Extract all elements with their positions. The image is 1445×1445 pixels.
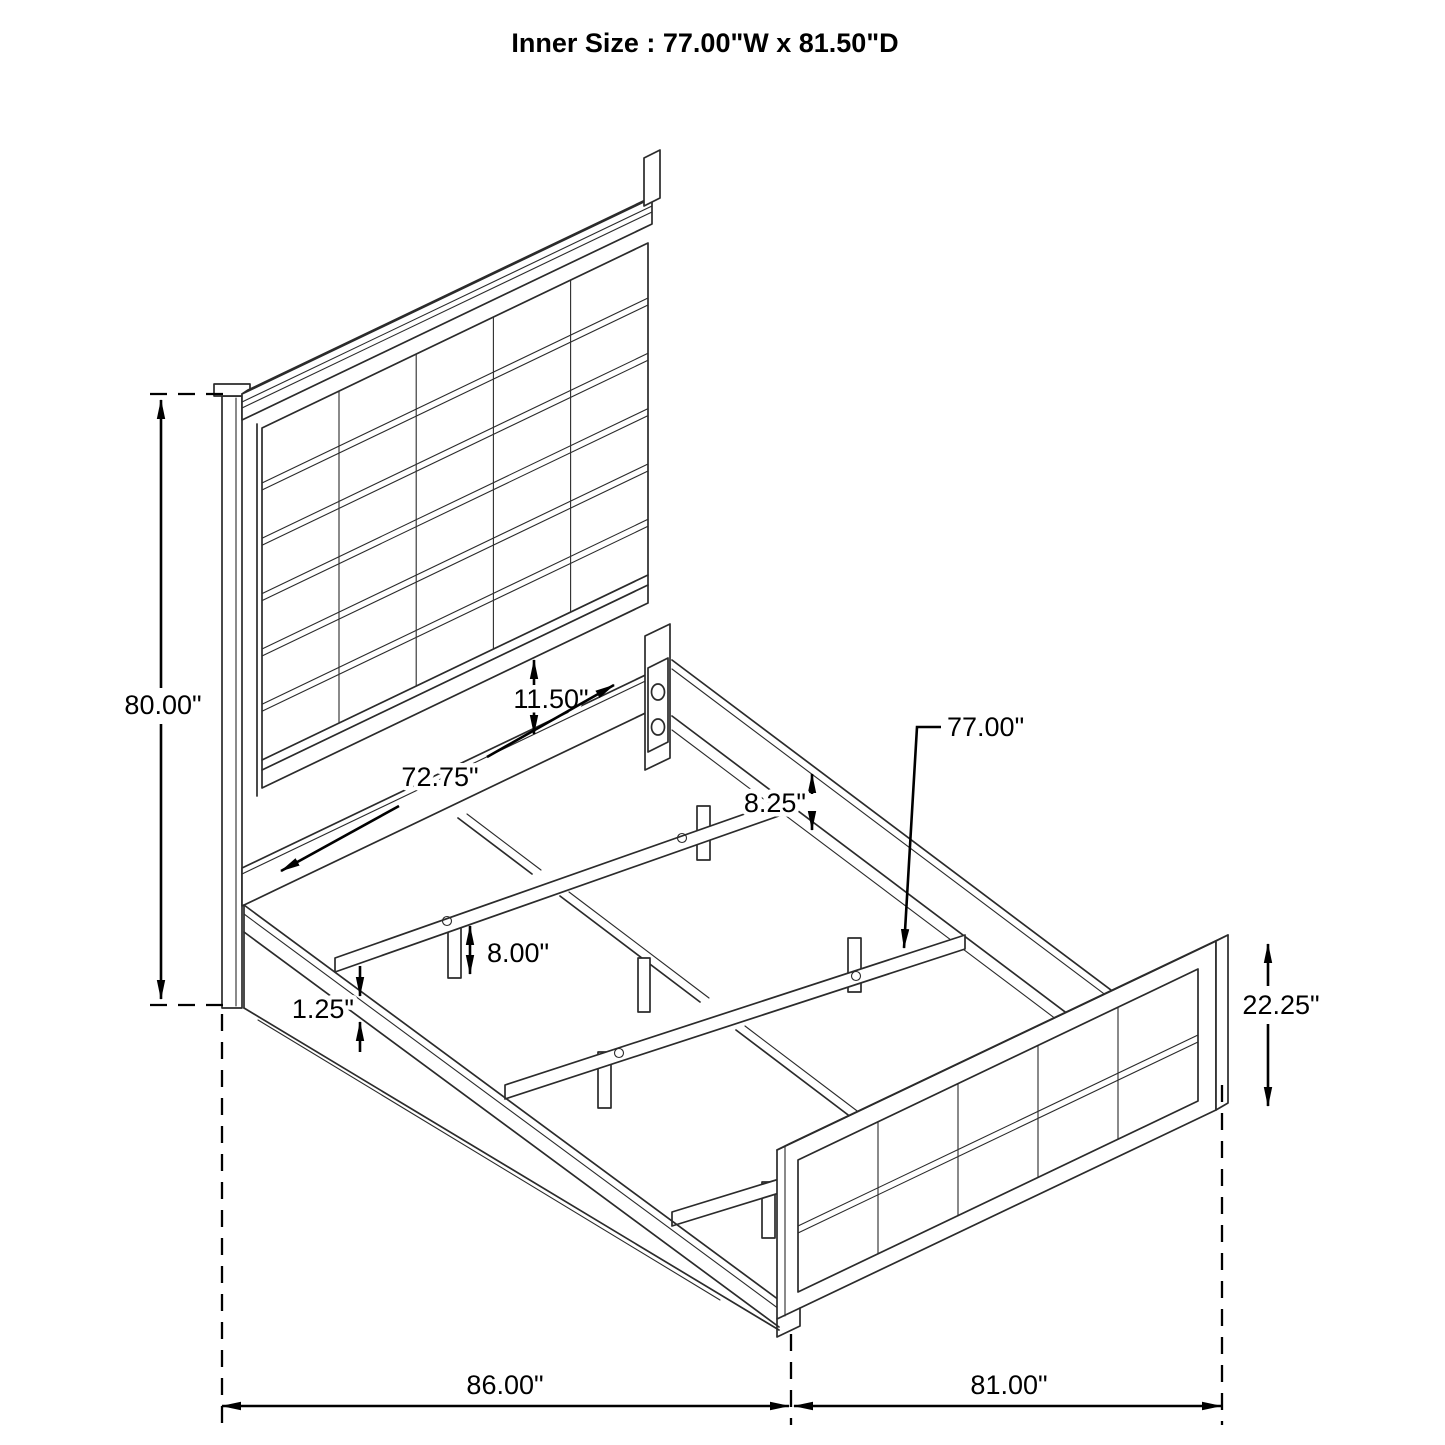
- headboard-post-right-top: [644, 150, 660, 206]
- dim-label-overall-width: 81.00": [970, 1370, 1047, 1400]
- dim-label-headboard-height: 80.00": [124, 690, 201, 720]
- rail-bottom-edge: [244, 1008, 779, 1330]
- dim-label-inner-width: 72.75": [401, 762, 478, 792]
- dim-overall-length: 86.00": [222, 1370, 789, 1406]
- dim-slat-length: 77.00": [904, 712, 1024, 948]
- dim-label-panel-gap: 11.50": [513, 684, 588, 714]
- center-rail-segment: [560, 896, 700, 1002]
- rail-base-step: [258, 1020, 720, 1300]
- footboard-side-face: [1216, 935, 1228, 1110]
- bed-dimension-diagram: Inner Size : 77.00"W x 81.50"D: [0, 0, 1445, 1445]
- dim-label-footboard-height: 22.25": [1242, 990, 1319, 1020]
- page-title: Inner Size : 77.00"W x 81.50"D: [511, 28, 898, 58]
- footboard-front: [777, 941, 1216, 1319]
- dim-headboard-height: 80.00": [124, 394, 230, 1005]
- footboard: [777, 935, 1228, 1337]
- dim-label-rail-height: 8.25": [744, 788, 806, 818]
- dim-leg-height: 8.00": [470, 926, 549, 974]
- headboard-post-left: [222, 396, 242, 1008]
- dim-footboard-height: 22.25": [1242, 944, 1319, 1106]
- center-rail-segment: [458, 818, 532, 874]
- dim-overall-width: 81.00": [794, 1370, 1221, 1406]
- dim-label-slat-length: 77.00": [947, 712, 1024, 742]
- mounting-bracket: [648, 658, 668, 752]
- center-rail-segment: [467, 814, 541, 870]
- dim-label-rail-lip: 1.25": [292, 994, 354, 1024]
- slat: [505, 935, 965, 1099]
- dim-rail-lip: 1.25": [292, 966, 360, 1052]
- diagram-canvas: Inner Size : 77.00"W x 81.50"D: [0, 0, 1445, 1445]
- dim-label-overall-length: 86.00": [466, 1370, 543, 1400]
- dim-label-leg-height: 8.00": [487, 938, 549, 968]
- rail-lip-line: [244, 932, 779, 1327]
- rail-lip-line: [244, 914, 779, 1309]
- side-rail-left: [244, 905, 779, 1330]
- support-leg: [638, 958, 650, 1012]
